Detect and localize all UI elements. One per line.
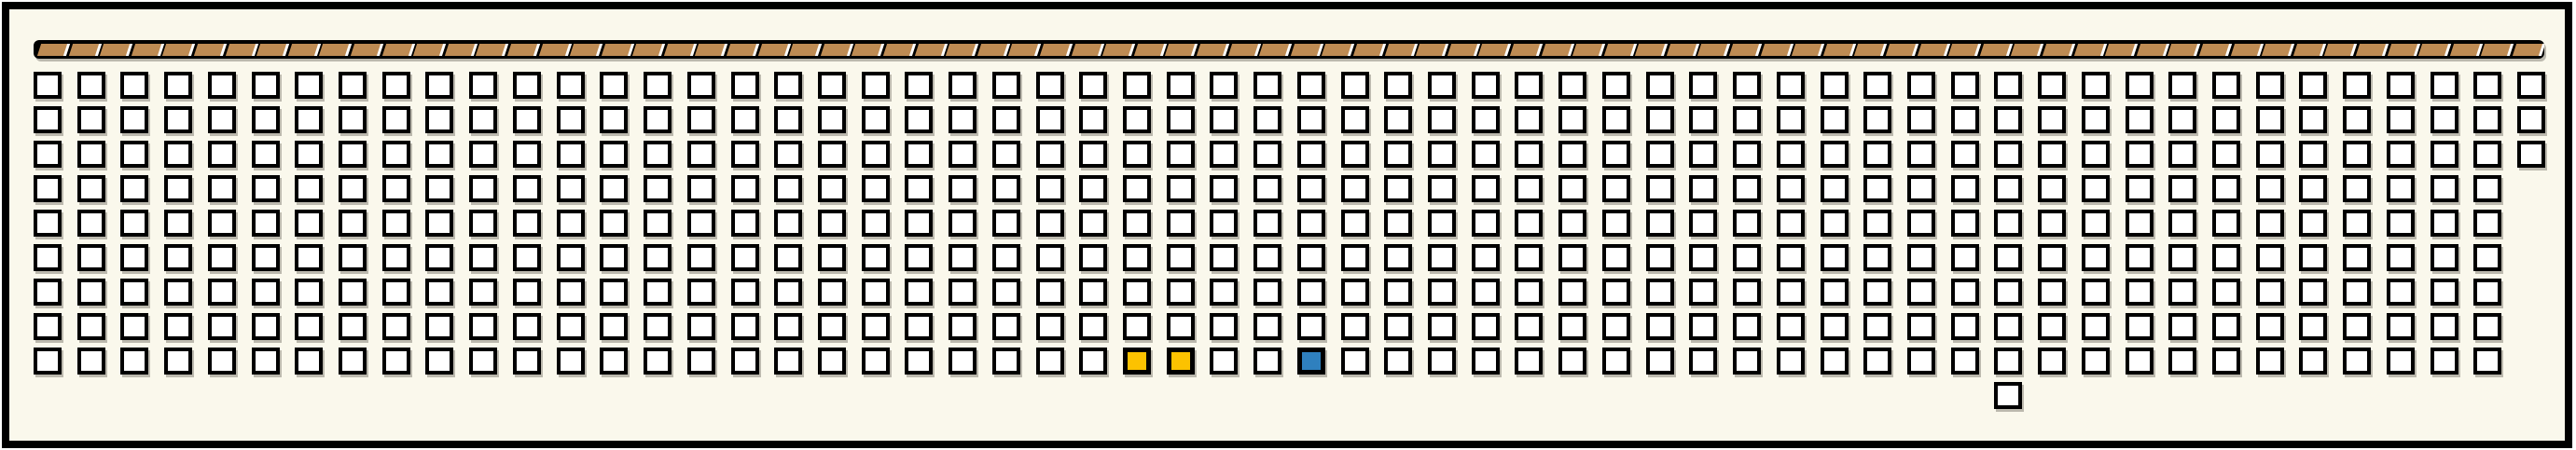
seat-cell[interactable]	[1863, 244, 1891, 271]
seat-cell[interactable]	[774, 72, 802, 99]
seat-cell[interactable]	[2431, 279, 2458, 306]
seat-cell[interactable]	[295, 313, 323, 340]
seat-cell[interactable]	[1907, 72, 1935, 99]
seat-cell[interactable]	[208, 72, 236, 99]
seat-cell[interactable]	[2473, 279, 2501, 306]
seat-cell[interactable]	[2126, 106, 2154, 133]
seat-cell[interactable]	[949, 348, 976, 375]
seat-cell[interactable]	[1472, 348, 1500, 375]
seat-cell[interactable]	[557, 210, 585, 237]
seat-cell[interactable]	[34, 210, 62, 237]
seat-cell[interactable]	[731, 279, 759, 306]
seat-cell[interactable]	[1123, 279, 1151, 306]
seat-cell[interactable]	[557, 175, 585, 202]
seat-cell[interactable]	[1951, 313, 1979, 340]
seat-cell[interactable]	[425, 175, 453, 202]
seat-cell[interactable]	[644, 244, 672, 271]
seat-cell[interactable]	[1994, 106, 2022, 133]
seat-cell[interactable]	[2126, 279, 2154, 306]
seat-cell[interactable]	[1253, 210, 1281, 237]
seat-cell[interactable]	[2168, 175, 2196, 202]
seat-cell-reserved[interactable]	[1297, 348, 1325, 375]
seat-cell[interactable]	[2038, 244, 2066, 271]
seat-cell[interactable]	[164, 106, 192, 133]
seat-cell[interactable]	[1863, 106, 1891, 133]
seat-cell[interactable]	[1821, 175, 1849, 202]
seat-cell[interactable]	[1210, 244, 1238, 271]
seat-cell[interactable]	[164, 348, 192, 375]
seat-cell[interactable]	[2126, 244, 2154, 271]
seat-cell[interactable]	[1079, 141, 1107, 168]
seat-cell[interactable]	[862, 279, 890, 306]
seat-cell[interactable]	[252, 141, 280, 168]
seat-cell[interactable]	[513, 244, 541, 271]
seat-cell[interactable]	[1428, 348, 1456, 375]
seat-cell[interactable]	[644, 141, 672, 168]
seat-cell[interactable]	[2431, 210, 2458, 237]
seat-cell[interactable]	[2168, 72, 2196, 99]
seat-cell[interactable]	[1602, 106, 1630, 133]
seat-cell[interactable]	[1994, 382, 2022, 409]
seat-cell[interactable]	[1646, 244, 1674, 271]
seat-cell[interactable]	[1210, 313, 1238, 340]
seat-cell[interactable]	[2299, 106, 2327, 133]
seat-cell[interactable]	[1079, 313, 1107, 340]
seat-cell[interactable]	[1602, 175, 1630, 202]
seat-cell[interactable]	[382, 210, 410, 237]
seat-cell[interactable]	[2082, 106, 2110, 133]
seat-cell[interactable]	[2387, 141, 2415, 168]
seat-cell[interactable]	[731, 244, 759, 271]
seat-cell[interactable]	[1646, 175, 1674, 202]
seat-cell[interactable]	[557, 72, 585, 99]
seat-cell[interactable]	[1297, 175, 1325, 202]
seat-cell[interactable]	[2343, 244, 2371, 271]
seat-cell[interactable]	[1951, 279, 1979, 306]
seat-cell[interactable]	[905, 175, 933, 202]
seat-cell[interactable]	[1167, 244, 1195, 271]
seat-cell[interactable]	[469, 244, 497, 271]
seat-cell[interactable]	[2299, 141, 2327, 168]
seat-cell[interactable]	[687, 279, 715, 306]
seat-cell[interactable]	[382, 175, 410, 202]
seat-cell[interactable]	[774, 348, 802, 375]
seat-cell[interactable]	[1951, 175, 1979, 202]
seat-cell[interactable]	[2299, 175, 2327, 202]
seat-cell[interactable]	[469, 210, 497, 237]
seat-cell[interactable]	[1079, 175, 1107, 202]
seat-cell[interactable]	[1036, 72, 1064, 99]
seat-cell[interactable]	[2168, 313, 2196, 340]
seat-cell[interactable]	[600, 72, 628, 99]
seat-cell[interactable]	[644, 175, 672, 202]
seat-cell[interactable]	[862, 141, 890, 168]
seat-cell[interactable]	[1907, 106, 1935, 133]
seat-cell[interactable]	[2343, 141, 2371, 168]
seat-cell[interactable]	[2126, 313, 2154, 340]
seat-cell[interactable]	[2517, 72, 2545, 99]
seat-cell[interactable]	[2431, 175, 2458, 202]
seat-cell[interactable]	[2212, 175, 2240, 202]
seat-cell[interactable]	[1821, 313, 1849, 340]
seat-cell[interactable]	[2473, 175, 2501, 202]
seat-cell[interactable]	[513, 210, 541, 237]
seat-cell[interactable]	[1558, 279, 1586, 306]
seat-cell[interactable]	[1036, 141, 1064, 168]
seat-cell[interactable]	[1951, 210, 1979, 237]
seat-cell[interactable]	[2168, 141, 2196, 168]
seat-cell[interactable]	[818, 348, 846, 375]
seat-cell[interactable]	[164, 72, 192, 99]
seat-cell[interactable]	[818, 72, 846, 99]
seat-cell[interactable]	[1428, 175, 1456, 202]
seat-cell[interactable]	[818, 175, 846, 202]
seat-cell[interactable]	[1210, 210, 1238, 237]
seat-cell[interactable]	[34, 279, 62, 306]
seat-cell[interactable]	[120, 72, 148, 99]
seat-cell[interactable]	[1689, 210, 1717, 237]
seat-cell[interactable]	[905, 279, 933, 306]
seat-cell[interactable]	[1515, 279, 1543, 306]
seat-cell[interactable]	[1297, 313, 1325, 340]
seat-cell[interactable]	[992, 348, 1020, 375]
seat-cell[interactable]	[339, 106, 367, 133]
seat-cell[interactable]	[120, 175, 148, 202]
seat-cell[interactable]	[2212, 244, 2240, 271]
seat-cell[interactable]	[862, 348, 890, 375]
seat-cell[interactable]	[1515, 313, 1543, 340]
seat-cell[interactable]	[862, 175, 890, 202]
seat-cell[interactable]	[818, 244, 846, 271]
seat-cell[interactable]	[120, 106, 148, 133]
seat-cell[interactable]	[1472, 210, 1500, 237]
seat-cell[interactable]	[469, 175, 497, 202]
seat-cell[interactable]	[2473, 244, 2501, 271]
seat-cell[interactable]	[2387, 210, 2415, 237]
seat-cell[interactable]	[644, 313, 672, 340]
seat-cell[interactable]	[1167, 175, 1195, 202]
seat-cell[interactable]	[1558, 210, 1586, 237]
seat-cell[interactable]	[1167, 141, 1195, 168]
seat-cell[interactable]	[1297, 106, 1325, 133]
seat-cell[interactable]	[1951, 106, 1979, 133]
seat-cell[interactable]	[1821, 348, 1849, 375]
seat-cell[interactable]	[2082, 141, 2110, 168]
seat-cell[interactable]	[2168, 210, 2196, 237]
seat-cell[interactable]	[949, 279, 976, 306]
seat-cell[interactable]	[1428, 244, 1456, 271]
seat-cell[interactable]	[1210, 348, 1238, 375]
seat-cell[interactable]	[1951, 141, 1979, 168]
seat-cell[interactable]	[382, 106, 410, 133]
seat-cell[interactable]	[1821, 141, 1849, 168]
seat-cell[interactable]	[2126, 72, 2154, 99]
seat-cell[interactable]	[774, 279, 802, 306]
seat-cell[interactable]	[120, 279, 148, 306]
seat-cell[interactable]	[2343, 175, 2371, 202]
seat-cell[interactable]	[1515, 72, 1543, 99]
seat-cell[interactable]	[382, 313, 410, 340]
seat-cell[interactable]	[1515, 244, 1543, 271]
seat-cell[interactable]	[2082, 72, 2110, 99]
seat-cell[interactable]	[2038, 313, 2066, 340]
seat-cell[interactable]	[1602, 348, 1630, 375]
seat-cell[interactable]	[1079, 348, 1107, 375]
seat-cell[interactable]	[1123, 313, 1151, 340]
seat-cell[interactable]	[1123, 210, 1151, 237]
seat-cell[interactable]	[1777, 244, 1805, 271]
seat-cell[interactable]	[1558, 72, 1586, 99]
seat-cell[interactable]	[1994, 141, 2022, 168]
seat-cell[interactable]	[818, 313, 846, 340]
seat-cell[interactable]	[1253, 106, 1281, 133]
seat-cell[interactable]	[469, 313, 497, 340]
seat-cell[interactable]	[1472, 72, 1500, 99]
seat-cell[interactable]	[425, 244, 453, 271]
seat-cell[interactable]	[425, 279, 453, 306]
seat-cell[interactable]	[1646, 279, 1674, 306]
seat-cell[interactable]	[1428, 279, 1456, 306]
seat-cell[interactable]	[557, 279, 585, 306]
seat-cell[interactable]	[2256, 244, 2284, 271]
seat-cell[interactable]	[1297, 279, 1325, 306]
seat-cell[interactable]	[2256, 175, 2284, 202]
seat-cell[interactable]	[2387, 175, 2415, 202]
seat-cell[interactable]	[1079, 210, 1107, 237]
seat-cell[interactable]	[295, 348, 323, 375]
seat-cell[interactable]	[2126, 348, 2154, 375]
seat-cell[interactable]	[2212, 106, 2240, 133]
seat-cell[interactable]	[2431, 141, 2458, 168]
seat-cell[interactable]	[1558, 244, 1586, 271]
seat-cell[interactable]	[164, 279, 192, 306]
seat-cell[interactable]	[513, 106, 541, 133]
seat-cell[interactable]	[339, 348, 367, 375]
seat-cell[interactable]	[77, 210, 105, 237]
seat-cell[interactable]	[992, 313, 1020, 340]
seat-cell[interactable]	[1123, 175, 1151, 202]
seat-cell[interactable]	[1472, 279, 1500, 306]
seat-cell[interactable]	[1297, 210, 1325, 237]
seat-cell[interactable]	[687, 210, 715, 237]
seat-cell[interactable]	[2299, 279, 2327, 306]
seat-cell[interactable]	[2517, 141, 2545, 168]
seat-cell[interactable]	[2473, 72, 2501, 99]
seat-cell[interactable]	[2212, 279, 2240, 306]
seat-cell[interactable]	[1558, 348, 1586, 375]
seat-cell[interactable]	[600, 244, 628, 271]
seat-cell[interactable]	[2126, 141, 2154, 168]
seat-cell[interactable]	[1210, 279, 1238, 306]
seat-cell[interactable]	[77, 313, 105, 340]
seat-cell[interactable]	[1472, 106, 1500, 133]
seat-cell[interactable]	[731, 313, 759, 340]
seat-cell[interactable]	[644, 72, 672, 99]
seat-cell[interactable]	[1210, 175, 1238, 202]
seat-cell[interactable]	[1167, 279, 1195, 306]
seat-cell[interactable]	[164, 175, 192, 202]
seat-cell[interactable]	[731, 106, 759, 133]
seat-cell[interactable]	[1558, 141, 1586, 168]
seat-cell[interactable]	[1863, 141, 1891, 168]
seat-cell[interactable]	[818, 141, 846, 168]
seat-cell[interactable]	[687, 348, 715, 375]
seat-cell[interactable]	[1994, 210, 2022, 237]
seat-cell[interactable]	[731, 210, 759, 237]
seat-cell[interactable]	[425, 313, 453, 340]
seat-cell[interactable]	[1341, 210, 1369, 237]
seat-cell[interactable]	[1123, 244, 1151, 271]
seat-cell[interactable]	[1036, 175, 1064, 202]
seat-cell[interactable]	[1036, 106, 1064, 133]
seat-cell[interactable]	[1907, 244, 1935, 271]
seat-cell[interactable]	[2387, 106, 2415, 133]
seat-cell[interactable]	[1863, 313, 1891, 340]
seat-cell[interactable]	[687, 106, 715, 133]
seat-cell[interactable]	[1994, 72, 2022, 99]
seat-cell[interactable]	[1689, 106, 1717, 133]
seat-cell[interactable]	[208, 313, 236, 340]
seat-cell[interactable]	[295, 244, 323, 271]
seat-cell[interactable]	[1036, 244, 1064, 271]
seat-cell[interactable]	[774, 175, 802, 202]
seat-cell[interactable]	[469, 72, 497, 99]
seat-cell[interactable]	[1167, 210, 1195, 237]
seat-cell[interactable]	[1515, 210, 1543, 237]
seat-cell[interactable]	[120, 313, 148, 340]
seat-cell[interactable]	[2343, 348, 2371, 375]
seat-cell[interactable]	[2256, 72, 2284, 99]
seat-cell[interactable]	[992, 279, 1020, 306]
seat-cell[interactable]	[2299, 244, 2327, 271]
seat-cell[interactable]	[1994, 279, 2022, 306]
seat-cell[interactable]	[208, 279, 236, 306]
seat-cell[interactable]	[644, 106, 672, 133]
seat-cell[interactable]	[1384, 210, 1412, 237]
seat-cell[interactable]	[2256, 313, 2284, 340]
seat-cell[interactable]	[1384, 313, 1412, 340]
seat-cell[interactable]	[1777, 279, 1805, 306]
seat-cell[interactable]	[2212, 313, 2240, 340]
seat-cell[interactable]	[687, 72, 715, 99]
seat-cell[interactable]	[1036, 279, 1064, 306]
seat-cell[interactable]	[1472, 313, 1500, 340]
seat-cell[interactable]	[600, 106, 628, 133]
seat-cell[interactable]	[1036, 210, 1064, 237]
seat-cell[interactable]	[1384, 244, 1412, 271]
seat-cell[interactable]	[1602, 279, 1630, 306]
seat-cell[interactable]	[339, 141, 367, 168]
seat-cell[interactable]	[77, 348, 105, 375]
seat-cell[interactable]	[600, 279, 628, 306]
seat-cell[interactable]	[34, 313, 62, 340]
seat-cell[interactable]	[77, 244, 105, 271]
seat-cell[interactable]	[2387, 348, 2415, 375]
seat-cell[interactable]	[2473, 106, 2501, 133]
seat-cell[interactable]	[1733, 279, 1761, 306]
seat-cell[interactable]	[339, 244, 367, 271]
seat-cell[interactable]	[774, 106, 802, 133]
seat-cell[interactable]	[1733, 210, 1761, 237]
seat-cell[interactable]	[1951, 72, 1979, 99]
seat-cell[interactable]	[1253, 175, 1281, 202]
seat-cell[interactable]	[2212, 348, 2240, 375]
seat-cell[interactable]	[774, 313, 802, 340]
seat-cell[interactable]	[1036, 348, 1064, 375]
seat-cell[interactable]	[1777, 141, 1805, 168]
seat-cell[interactable]	[2168, 279, 2196, 306]
seat-cell[interactable]	[252, 313, 280, 340]
seat-cell[interactable]	[557, 313, 585, 340]
seat-cell[interactable]	[295, 141, 323, 168]
seat-cell[interactable]	[1123, 106, 1151, 133]
seat-cell[interactable]	[905, 141, 933, 168]
seat-cell[interactable]	[992, 175, 1020, 202]
seat-cell[interactable]	[731, 72, 759, 99]
seat-cell[interactable]	[2256, 141, 2284, 168]
seat-cell[interactable]	[1777, 175, 1805, 202]
seat-cell[interactable]	[1384, 348, 1412, 375]
seat-cell[interactable]	[77, 141, 105, 168]
seat-cell[interactable]	[339, 72, 367, 99]
seat-cell[interactable]	[252, 72, 280, 99]
seat-cell[interactable]	[1689, 279, 1717, 306]
seat-cell[interactable]	[949, 175, 976, 202]
seat-cell[interactable]	[1253, 313, 1281, 340]
seat-cell[interactable]	[2082, 175, 2110, 202]
seat-cell[interactable]	[295, 72, 323, 99]
seat-cell[interactable]	[905, 313, 933, 340]
seat-cell[interactable]	[1907, 175, 1935, 202]
seat-cell[interactable]	[425, 210, 453, 237]
seat-cell[interactable]	[992, 106, 1020, 133]
seat-cell[interactable]	[1341, 244, 1369, 271]
seat-cell[interactable]	[2038, 106, 2066, 133]
seat-cell[interactable]	[164, 141, 192, 168]
seat-cell[interactable]	[1167, 313, 1195, 340]
seat-cell[interactable]	[1602, 72, 1630, 99]
seat-cell[interactable]	[687, 141, 715, 168]
seat-cell[interactable]	[1777, 106, 1805, 133]
seat-cell[interactable]	[2212, 141, 2240, 168]
seat-cell[interactable]	[252, 279, 280, 306]
seat-cell[interactable]	[208, 210, 236, 237]
seat-cell[interactable]	[1689, 244, 1717, 271]
seat-cell[interactable]	[295, 279, 323, 306]
seat-cell[interactable]	[339, 210, 367, 237]
seat-cell[interactable]	[513, 141, 541, 168]
seat-cell[interactable]	[425, 106, 453, 133]
seat-cell[interactable]	[1602, 141, 1630, 168]
seat-cell[interactable]	[600, 348, 628, 375]
seat-cell[interactable]	[208, 348, 236, 375]
seat-cell[interactable]	[1863, 348, 1891, 375]
seat-cell[interactable]	[2299, 210, 2327, 237]
seat-cell[interactable]	[862, 72, 890, 99]
seat-cell[interactable]	[1253, 244, 1281, 271]
seat-cell[interactable]	[34, 141, 62, 168]
seat-cell[interactable]	[469, 106, 497, 133]
seat-cell[interactable]	[1777, 210, 1805, 237]
seat-cell[interactable]	[77, 175, 105, 202]
seat-cell[interactable]	[1472, 244, 1500, 271]
seat-cell[interactable]	[2343, 279, 2371, 306]
seat-cell[interactable]	[469, 141, 497, 168]
seat-cell[interactable]	[1384, 175, 1412, 202]
seat-cell[interactable]	[557, 141, 585, 168]
seat-cell[interactable]	[295, 106, 323, 133]
seat-cell[interactable]	[992, 141, 1020, 168]
